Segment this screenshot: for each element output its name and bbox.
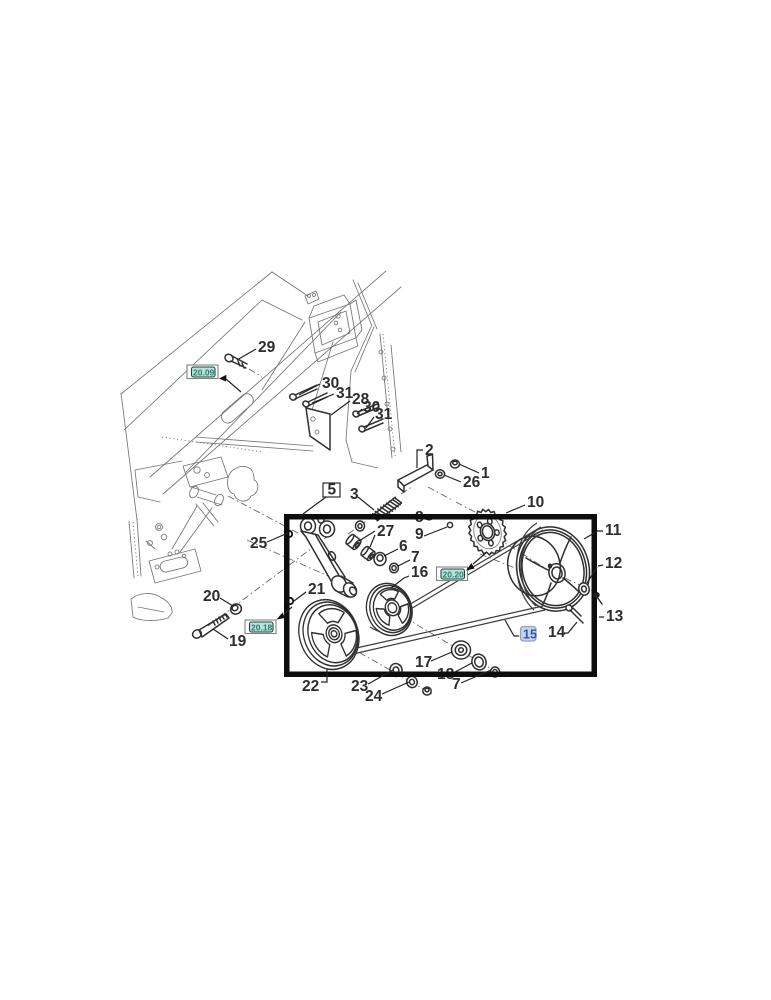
- svg-text:1: 1: [481, 465, 490, 482]
- svg-text:6: 6: [399, 538, 408, 555]
- svg-text:20.09: 20.09: [193, 367, 215, 377]
- svg-text:3: 3: [350, 486, 359, 503]
- svg-text:13: 13: [606, 608, 624, 625]
- svg-text:25: 25: [250, 535, 268, 552]
- svg-text:7: 7: [452, 676, 461, 693]
- svg-text:5: 5: [328, 482, 337, 499]
- svg-text:24: 24: [365, 688, 383, 705]
- svg-text:27: 27: [377, 523, 394, 540]
- svg-text:29: 29: [258, 339, 276, 356]
- svg-text:31: 31: [336, 385, 354, 402]
- svg-text:21: 21: [308, 581, 326, 598]
- svg-text:31: 31: [375, 406, 393, 423]
- svg-text:19: 19: [229, 633, 247, 650]
- svg-text:20.20: 20.20: [443, 569, 465, 579]
- svg-text:11: 11: [605, 522, 622, 539]
- svg-text:26: 26: [463, 474, 481, 491]
- svg-text:22: 22: [302, 678, 319, 695]
- svg-text:14: 14: [548, 624, 566, 641]
- svg-text:17: 17: [415, 654, 432, 671]
- svg-text:20: 20: [203, 588, 220, 605]
- svg-text:9: 9: [415, 526, 424, 543]
- svg-text:16: 16: [411, 564, 429, 581]
- svg-text:15: 15: [523, 628, 537, 642]
- svg-text:2: 2: [425, 442, 434, 459]
- svg-text:20.18: 20.18: [251, 622, 273, 632]
- svg-text:10: 10: [527, 494, 544, 511]
- svg-text:12: 12: [605, 555, 622, 572]
